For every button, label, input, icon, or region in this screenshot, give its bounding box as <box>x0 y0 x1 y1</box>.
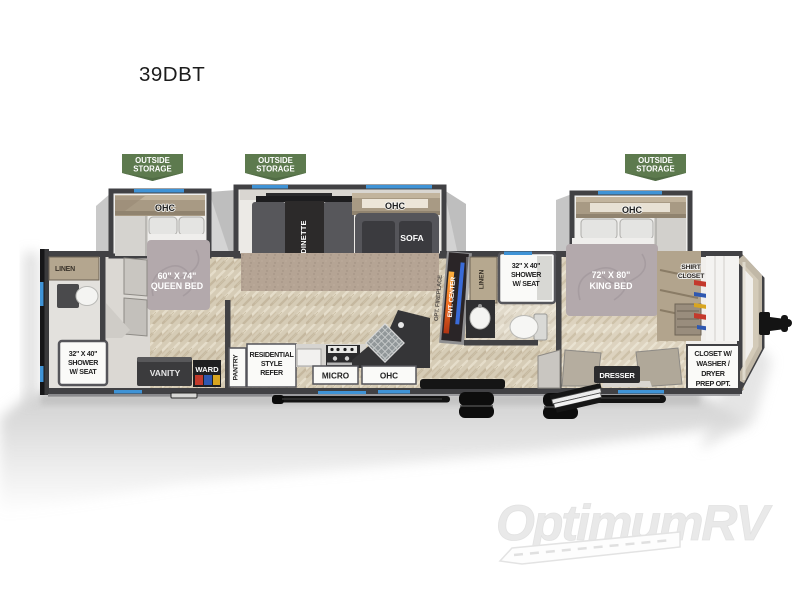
svg-text:STYLE: STYLE <box>261 360 283 368</box>
svg-text:LINEN: LINEN <box>55 266 75 273</box>
svg-text:SHIRT: SHIRT <box>681 264 701 271</box>
svg-text:DRYER: DRYER <box>701 369 726 378</box>
svg-text:STORAGE: STORAGE <box>636 165 674 174</box>
svg-text:CLOSET: CLOSET <box>678 273 705 280</box>
svg-text:VANITY: VANITY <box>150 368 181 378</box>
svg-text:DINETTE: DINETTE <box>299 220 308 253</box>
svg-text:OHC: OHC <box>385 201 406 211</box>
svg-text:RESIDENTIAL: RESIDENTIAL <box>250 351 295 359</box>
svg-text:REFER: REFER <box>260 369 283 377</box>
svg-text:STORAGE: STORAGE <box>256 165 294 174</box>
svg-text:SHOWER: SHOWER <box>511 271 541 279</box>
svg-text:32" X 40": 32" X 40" <box>512 262 540 270</box>
svg-text:KING BED: KING BED <box>589 281 632 291</box>
svg-text:OHC: OHC <box>622 205 643 215</box>
svg-text:CLOSET W/: CLOSET W/ <box>694 349 732 358</box>
svg-text:LINEN: LINEN <box>479 270 486 290</box>
svg-text:WARD: WARD <box>195 365 219 374</box>
svg-text:32" X 40": 32" X 40" <box>69 350 97 358</box>
svg-text:OHC: OHC <box>380 372 398 381</box>
svg-text:WASHER /: WASHER / <box>696 359 729 368</box>
svg-text:DRESSER: DRESSER <box>599 371 635 380</box>
svg-text:OHC: OHC <box>155 203 176 213</box>
svg-text:MICRO: MICRO <box>322 372 350 381</box>
svg-text:SOFA: SOFA <box>400 233 423 243</box>
svg-text:PREP OPT.: PREP OPT. <box>696 379 731 388</box>
svg-text:W/ SEAT: W/ SEAT <box>70 368 98 376</box>
svg-text:STORAGE: STORAGE <box>133 165 171 174</box>
svg-text:72" X 80": 72" X 80" <box>592 270 631 280</box>
svg-text:SHOWER: SHOWER <box>68 359 98 367</box>
svg-text:60" X 74": 60" X 74" <box>158 271 197 281</box>
svg-text:PANTRY: PANTRY <box>233 354 240 381</box>
svg-text:39DBT: 39DBT <box>139 63 205 86</box>
svg-text:W/ SEAT: W/ SEAT <box>513 280 541 288</box>
svg-text:QUEEN BED: QUEEN BED <box>151 281 203 291</box>
